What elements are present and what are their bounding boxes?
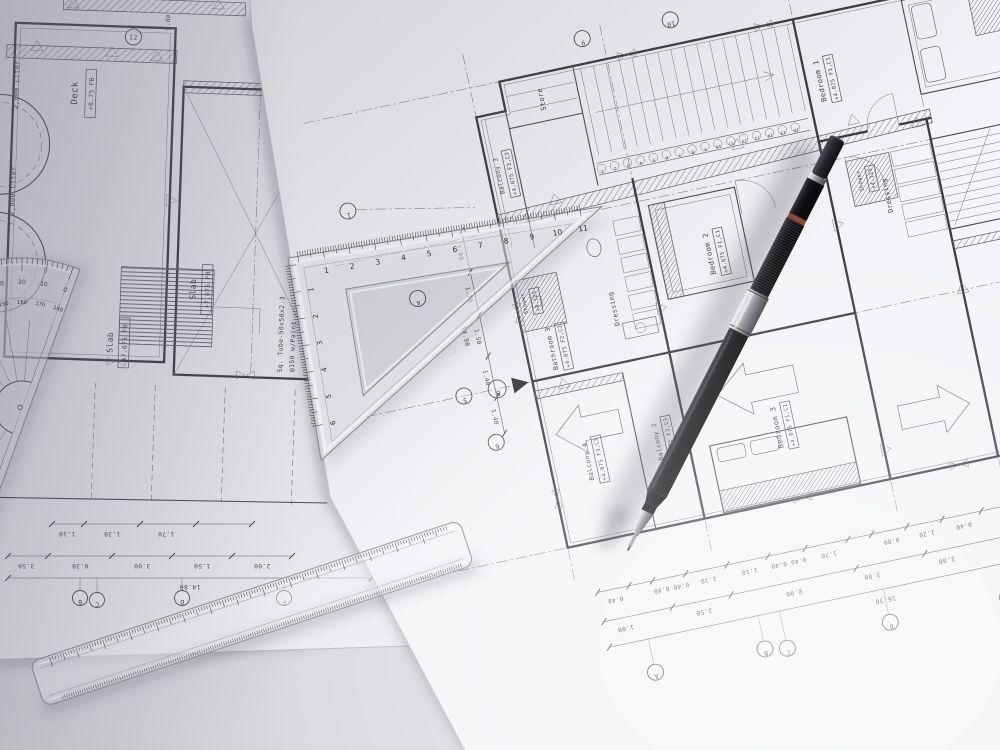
light-vignette (0, 0, 1000, 750)
scene: Deck +0.75 FB 2,000 Liter 2,000 Liter 12… (0, 0, 1000, 750)
photo-of-blueprints: Deck +0.75 FB 2,000 Liter 2,000 Liter 12… (0, 0, 1000, 750)
